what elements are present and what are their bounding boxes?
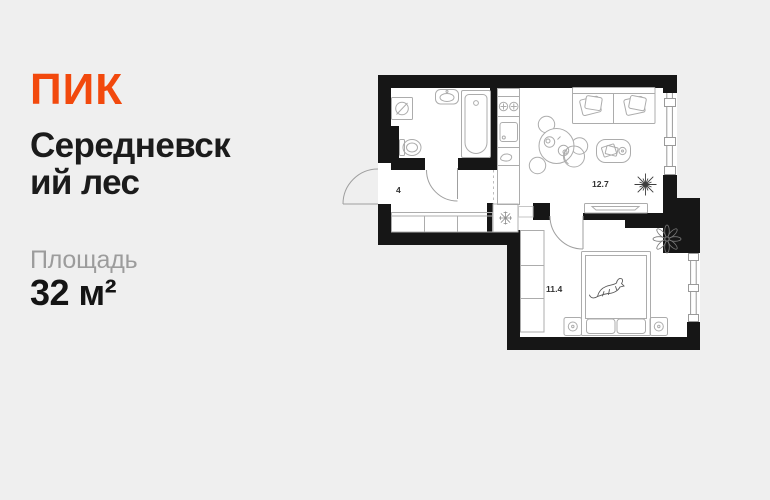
listing-card: ПИК Середневск ий лес Площадь 32 м² bbox=[0, 0, 770, 500]
area-label: Площадь bbox=[30, 246, 137, 275]
project-title: Середневск ий лес bbox=[30, 127, 280, 201]
room-label-bedroom: 11.4 bbox=[546, 284, 562, 294]
entrance-door-swing bbox=[343, 169, 378, 204]
bedroom-window bbox=[687, 253, 700, 322]
bathroom-door-opening bbox=[425, 158, 458, 170]
pik-logo: ПИК bbox=[30, 68, 123, 112]
entrance-door-opening bbox=[378, 163, 391, 204]
plant-icon bbox=[635, 174, 657, 196]
floorplan: 4 12.7 11.4 bbox=[335, 55, 720, 365]
room-label-hallway: 4 bbox=[396, 185, 401, 195]
project-title-line1: Середневск bbox=[30, 127, 280, 164]
project-title-line2: ий лес bbox=[30, 164, 280, 201]
room-label-kitchen-living: 12.7 bbox=[592, 179, 609, 189]
living-room-window bbox=[663, 93, 677, 175]
area-value: 32 м² bbox=[30, 272, 116, 314]
